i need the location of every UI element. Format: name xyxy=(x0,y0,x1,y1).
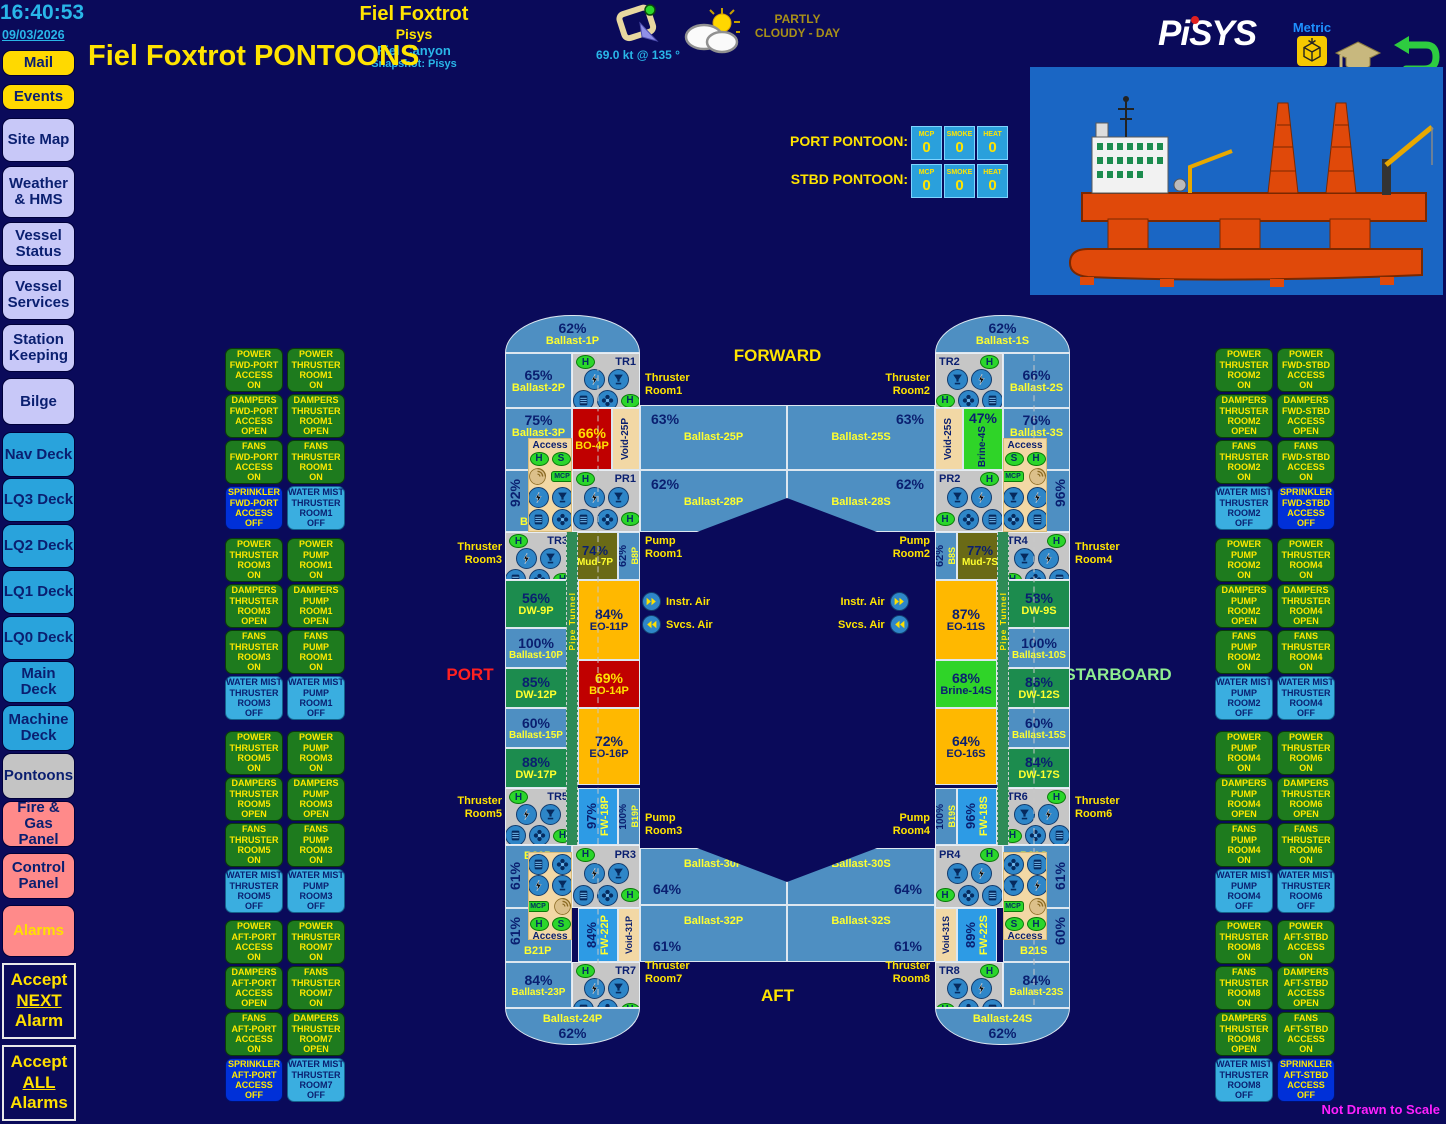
power-icon xyxy=(971,487,992,508)
louver-icon xyxy=(573,885,594,906)
fan-icon xyxy=(552,854,573,875)
tank-bo-4p: 66%BO-4P xyxy=(572,408,612,470)
vent-control-button[interactable]: POWER THRUSTER ROOM8 ON xyxy=(1215,920,1273,964)
power-icon xyxy=(584,487,605,508)
tank-ballast-1s: 62%Ballast-1S xyxy=(935,315,1070,353)
heat-detector-icon: H xyxy=(1027,452,1046,466)
access-area-aft-port: MCP HS Access xyxy=(528,852,572,940)
vent-control-button[interactable]: POWER PUMP ROOM4 ON xyxy=(1215,731,1273,775)
fan-icon xyxy=(958,390,979,408)
room-pr1: HPR1 H xyxy=(572,470,640,532)
vent-control-button[interactable]: WATER MIST THRUSTER ROOM4 OFF xyxy=(1277,676,1335,720)
power-icon xyxy=(584,863,605,884)
heat-detector-icon: H xyxy=(980,355,999,369)
damper-icon xyxy=(1014,548,1035,569)
vent-control-button[interactable]: DAMPERS THRUSTER ROOM7 OPEN xyxy=(287,1012,345,1056)
damper-icon xyxy=(1003,875,1024,896)
room-tr8: HTR8 H xyxy=(935,962,1003,1008)
vent-control-button[interactable]: DAMPERS FWD-PORT ACCESS OPEN xyxy=(225,394,283,438)
svcs-air-label: Svcs. Air xyxy=(838,619,885,631)
heat-detector-icon: H xyxy=(621,512,640,526)
sidebar: 16:40:53 09/03/2026 Mail Events Site Map… xyxy=(0,0,78,1124)
thruster-room1-label: Thruster Room1 xyxy=(645,372,690,397)
sidebar-button[interactable]: Station Keeping xyxy=(2,324,75,372)
tank-ballast-23s: 84%Ballast-23S xyxy=(1003,962,1070,1008)
svcs-air-arrow-icon xyxy=(642,615,661,634)
vent-control-button[interactable]: POWER AFT-STBD ACCESS ON xyxy=(1277,920,1335,964)
vent-control-button[interactable]: DAMPERS AFT-PORT ACCESS OPEN xyxy=(225,966,283,1010)
mid-aft-port-vent-group: POWER THRUSTER ROOM5 ONPOWER PUMP ROOM3 … xyxy=(225,731,345,913)
vent-control-button[interactable]: WATER MIST THRUSTER ROOM1 OFF xyxy=(287,486,345,530)
pisys-logo-dot xyxy=(1191,16,1199,24)
room-tr2: HTR2 H xyxy=(935,353,1003,408)
damper-icon xyxy=(608,369,629,390)
vent-control-button[interactable]: FANS THRUSTER ROOM6 ON xyxy=(1277,823,1335,867)
pipe-tunnel-stbd: Pipe Tunnel xyxy=(997,532,1009,845)
louver-icon xyxy=(505,569,526,580)
sprinkler-rose-icon xyxy=(1027,896,1047,917)
sprinkler-rose-icon xyxy=(528,466,548,487)
thruster-room2-label: Thruster Room2 xyxy=(862,372,930,397)
tank-ballast-32p: Ballast-32P 61% xyxy=(640,905,787,962)
tank-eo-11p: 84%EO-11P xyxy=(578,580,640,660)
manual-call-point-icon: MCP xyxy=(551,471,572,482)
fan-icon xyxy=(597,390,618,408)
sidebar-button[interactable]: Main Deck xyxy=(2,661,75,703)
vent-control-button[interactable]: POWER THRUSTER ROOM5 ON xyxy=(225,731,283,775)
power-icon xyxy=(1038,548,1059,569)
heat-detector-icon: H xyxy=(1047,534,1066,548)
smoke-detector-icon: S xyxy=(1005,452,1024,466)
accept-next-line3: Alarm xyxy=(15,1011,63,1031)
louver-icon xyxy=(1027,509,1048,530)
fan-icon xyxy=(958,885,979,906)
stbd-smoke-counter: SMOKE0 xyxy=(944,164,975,198)
heat-detector-icon: H xyxy=(980,848,999,862)
fan-icon xyxy=(597,885,618,906)
fwd-stbd-vent-group: POWER THRUSTER ROOM2 ONPOWER FWD-STBD AC… xyxy=(1215,348,1335,530)
damper-icon xyxy=(540,548,561,569)
vent-control-button[interactable]: POWER THRUSTER ROOM1 ON xyxy=(287,348,345,392)
units-cube-icon[interactable] xyxy=(1297,36,1327,66)
fan-icon xyxy=(529,825,550,845)
vent-control-button[interactable]: WATER MIST THRUSTER ROOM8 OFF xyxy=(1215,1058,1273,1102)
tank-mud-7p: 74%Mud-7P xyxy=(572,532,618,580)
vent-control-button[interactable]: FANS PUMP ROOM4 ON xyxy=(1215,823,1273,867)
fan-icon xyxy=(958,999,979,1008)
vessel-illustration xyxy=(1030,67,1443,295)
power-icon xyxy=(971,863,992,884)
weather-condition: PARTLY CLOUDY - DAY xyxy=(740,12,855,41)
heat-detector-icon: H xyxy=(936,1003,955,1009)
vent-control-button[interactable]: POWER THRUSTER ROOM6 ON xyxy=(1277,731,1335,775)
tank-ballast-10s: 100%Ballast-10S xyxy=(1008,628,1070,668)
stbd-pontoon-counter-label: STBD PONTOON: xyxy=(786,171,908,187)
fan-icon xyxy=(1025,825,1046,845)
louver-icon xyxy=(528,854,549,875)
vent-control-button[interactable]: DAMPERS PUMP ROOM3 OPEN xyxy=(287,777,345,821)
accept-next-line1: Accept xyxy=(11,970,68,990)
vent-control-button[interactable]: FANS THRUSTER ROOM3 ON xyxy=(225,630,283,674)
vent-control-button[interactable]: POWER THRUSTER ROOM4 ON xyxy=(1277,538,1335,582)
tank-b8p: 62% B8P xyxy=(618,532,640,580)
heat-detector-icon: H xyxy=(621,394,640,408)
louver-icon xyxy=(982,885,1003,906)
vent-control-button[interactable]: FANS THRUSTER ROOM1 ON xyxy=(287,440,345,484)
sidebar-button[interactable]: Pontoons xyxy=(2,753,75,799)
vent-control-button[interactable]: DAMPERS THRUSTER ROOM2 OPEN xyxy=(1215,394,1273,438)
sidebar-button[interactable]: Fire & Gas Panel xyxy=(2,801,75,847)
vent-control-button[interactable]: WATER MIST PUMP ROOM1 OFF xyxy=(287,676,345,720)
tank-ballast-2p: 65%Ballast-2P xyxy=(505,353,572,408)
pisys-logo: PiSYS xyxy=(1158,14,1256,54)
vent-control-button[interactable]: WATER MIST THRUSTER ROOM7 OFF xyxy=(287,1058,345,1102)
vent-control-button[interactable]: FANS THRUSTER ROOM7 ON xyxy=(287,966,345,1010)
vent-control-button[interactable]: DAMPERS THRUSTER ROOM5 OPEN xyxy=(225,777,283,821)
heat-detector-icon: H xyxy=(509,534,528,548)
sidebar-button[interactable]: LQ2 Deck xyxy=(2,524,75,568)
clock-time: 16:40:53 xyxy=(0,2,78,23)
damper-icon xyxy=(540,804,561,825)
tank-void-25p: Void-25P xyxy=(612,408,640,470)
instr-air-label: Instr. Air xyxy=(840,596,884,608)
louver-icon xyxy=(982,999,1003,1008)
vent-control-button[interactable]: POWER PUMP ROOM2 ON xyxy=(1215,538,1273,582)
tank-ballast-32s: Ballast-32S 61% xyxy=(787,905,935,962)
damper-icon xyxy=(947,369,968,390)
smoke-detector-icon: S xyxy=(552,917,571,931)
fan-icon xyxy=(597,509,618,530)
sidebar-button[interactable]: Weather & HMS xyxy=(2,166,75,218)
vent-control-button[interactable]: WATER MIST THRUSTER ROOM2 OFF xyxy=(1215,486,1273,530)
tank-b8s: 62% B8S xyxy=(935,532,957,580)
heat-detector-icon: H xyxy=(576,964,595,978)
vent-control-button[interactable]: FANS THRUSTER ROOM8 ON xyxy=(1215,966,1273,1010)
weather-icon xyxy=(680,6,742,58)
room-tr7: HTR7 H xyxy=(572,962,640,1008)
heat-detector-icon: H xyxy=(530,917,549,931)
units-toggle-label[interactable]: Metric xyxy=(1284,20,1340,35)
sidebar-button[interactable]: Site Map xyxy=(2,118,75,162)
louver-icon xyxy=(505,825,526,845)
vent-control-button[interactable]: DAMPERS PUMP ROOM2 OPEN xyxy=(1215,584,1273,628)
stbd-heat-counter: HEAT0 xyxy=(977,164,1008,198)
port-pontoon-counter-label: PORT PONTOON: xyxy=(786,133,908,149)
system-name: Pisys xyxy=(330,27,498,41)
vent-control-button[interactable]: FANS AFT-STBD ACCESS ON xyxy=(1277,1012,1335,1056)
heat-detector-icon: H xyxy=(621,888,640,902)
tank-dw-12p: 85%DW-12P xyxy=(505,668,567,708)
pump-room2-label: Pump Room2 xyxy=(862,535,930,560)
thruster-room5-label: Thruster Room5 xyxy=(432,795,502,820)
tank-b19p: 100% B19P xyxy=(618,788,640,845)
heat-detector-icon: H xyxy=(980,964,999,978)
sidebar-button[interactable]: Alarms xyxy=(2,905,75,957)
heat-detector-icon: H xyxy=(509,790,528,804)
tank-ballast-23p: 84%Ballast-23P xyxy=(505,962,572,1008)
port-air-supplies: Instr. Air Svcs. Air xyxy=(642,592,713,638)
vent-control-button[interactable]: DAMPERS THRUSTER ROOM1 OPEN xyxy=(287,394,345,438)
accept-all-line2: ALL xyxy=(22,1073,55,1093)
sidebar-button[interactable]: Vessel Status xyxy=(2,222,75,266)
damper-icon xyxy=(608,487,629,508)
vent-control-button[interactable]: DAMPERS THRUSTER ROOM8 OPEN xyxy=(1215,1012,1273,1056)
tank-eo-16s: 64%EO-16S xyxy=(935,708,997,785)
sidebar-button[interactable]: LQ0 Deck xyxy=(2,616,75,660)
damper-icon xyxy=(608,863,629,884)
pipe-tunnel-port: Pipe Tunnel xyxy=(566,532,578,845)
accept-all-line1: Accept xyxy=(11,1052,68,1072)
power-icon xyxy=(516,548,537,569)
room-pr3: HPR3 H xyxy=(572,845,640,908)
power-icon xyxy=(584,978,605,999)
tank-void-31p: Void-31P xyxy=(618,908,640,962)
port-label: PORT xyxy=(440,665,500,685)
sidebar-button[interactable]: Mail xyxy=(2,50,75,76)
pump-room1-label: Pump Room1 xyxy=(645,535,682,560)
room-tr4: HTR4 H xyxy=(1003,532,1070,580)
vent-control-button[interactable]: SPRINKLER FWD-PORT ACCESS OFF xyxy=(225,486,283,530)
fan-icon xyxy=(1003,854,1024,875)
vent-control-button[interactable]: WATER MIST THRUSTER ROOM6 OFF xyxy=(1277,869,1335,913)
mid-fwd-stbd-vent-group: POWER PUMP ROOM2 ONPOWER THRUSTER ROOM4 … xyxy=(1215,538,1335,720)
damper-icon xyxy=(947,978,968,999)
tank-brine-4s: 47%Brine-4S xyxy=(963,408,1003,470)
vent-control-button[interactable]: POWER THRUSTER ROOM7 ON xyxy=(287,920,345,964)
pump-room4-label: Pump Room4 xyxy=(862,812,930,837)
instr-air-arrow-icon xyxy=(642,592,661,611)
vent-control-button[interactable]: SPRINKLER AFT-STBD ACCESS OFF xyxy=(1277,1058,1335,1102)
tank-dw-9s: 58%DW-9S xyxy=(1008,580,1070,628)
tank-dw-17p: 88%DW-17P xyxy=(505,748,567,788)
clock-date[interactable]: 09/03/2026 xyxy=(2,28,65,42)
power-icon xyxy=(528,875,549,896)
thruster-room4-label: Thruster Room4 xyxy=(1075,541,1120,566)
vent-control-button[interactable]: FANS THRUSTER ROOM5 ON xyxy=(225,823,283,867)
manual-call-point-icon: MCP xyxy=(1003,471,1024,482)
stbd-air-supplies: Instr. Air Svcs. Air xyxy=(838,592,909,638)
accept-all-line3: Alarms xyxy=(10,1093,68,1113)
power-icon xyxy=(1027,875,1048,896)
vent-control-button[interactable]: POWER THRUSTER ROOM2 ON xyxy=(1215,348,1273,392)
port-mcp-counter: MCP0 xyxy=(911,126,942,160)
sprinkler-rose-icon xyxy=(1027,466,1047,487)
port-heat-counter: HEAT0 xyxy=(977,126,1008,160)
tank-ballast-25s: 63% Ballast-25S xyxy=(787,405,935,470)
tank-fw-18s: 96% FW-18S xyxy=(957,788,997,845)
page-title: Fiel Foxtrot PONTOONS xyxy=(88,40,419,73)
instr-air-label: Instr. Air xyxy=(666,596,710,608)
power-icon xyxy=(1038,804,1059,825)
tank-eo-11s: 87%EO-11S xyxy=(935,580,997,660)
starboard-label: STARBOARD xyxy=(1058,665,1178,685)
vent-control-button[interactable]: WATER MIST THRUSTER ROOM5 OFF xyxy=(225,869,283,913)
fwd-port-vent-group: POWER FWD-PORT ACCESS ONPOWER THRUSTER R… xyxy=(225,348,345,530)
power-icon xyxy=(516,804,537,825)
aft-stbd-vent-group: POWER THRUSTER ROOM8 ONPOWER AFT-STBD AC… xyxy=(1215,920,1335,1102)
vent-control-button[interactable]: DAMPERS THRUSTER ROOM6 OPEN xyxy=(1277,777,1335,821)
vent-control-button[interactable]: FANS PUMP ROOM1 ON xyxy=(287,630,345,674)
louver-icon xyxy=(528,509,549,530)
pump-room3-label: Pump Room3 xyxy=(645,812,682,837)
vent-control-button[interactable]: WATER MIST THRUSTER ROOM3 OFF xyxy=(225,676,283,720)
smoke-detector-icon: S xyxy=(1005,917,1024,931)
access-area-fwd-stbd: Access SH MCP xyxy=(1003,438,1047,532)
tank-ballast-2s: 66%Ballast-2S xyxy=(1003,353,1070,408)
vent-control-button[interactable]: POWER PUMP ROOM1 ON xyxy=(287,538,345,582)
sidebar-button[interactable]: Nav Deck xyxy=(2,432,75,477)
vent-control-button[interactable]: SPRINKLER FWD-STBD ACCESS OFF xyxy=(1277,486,1335,530)
tank-ballast-10p: 100%Ballast-10P xyxy=(505,628,567,668)
power-icon xyxy=(971,369,992,390)
mid-fwd-port-vent-group: POWER THRUSTER ROOM3 ONPOWER PUMP ROOM1 … xyxy=(225,538,345,720)
mid-aft-stbd-vent-group: POWER PUMP ROOM4 ONPOWER THRUSTER ROOM6 … xyxy=(1215,731,1335,913)
vent-control-button[interactable]: POWER THRUSTER ROOM3 ON xyxy=(225,538,283,582)
sidebar-button[interactable]: Machine Deck xyxy=(2,705,75,751)
tank-brine-14s: 68%Brine-14S xyxy=(935,660,997,708)
accept-next-line2: NEXT xyxy=(16,991,61,1011)
vent-control-button[interactable]: FANS PUMP ROOM2 ON xyxy=(1215,630,1273,674)
access-area-aft-stbd: MCP SH Access xyxy=(1003,852,1047,940)
vent-control-button[interactable]: DAMPERS AFT-STBD ACCESS OPEN xyxy=(1277,966,1335,1010)
fan-icon xyxy=(529,569,550,580)
vent-control-button[interactable]: DAMPERS PUMP ROOM1 OPEN xyxy=(287,584,345,628)
manual-call-point-icon: MCP xyxy=(1003,901,1024,912)
sidebar-button[interactable]: Bilge xyxy=(2,378,75,425)
damper-icon xyxy=(1003,487,1024,508)
louver-icon xyxy=(1049,825,1070,845)
tank-ballast-1p: 62%Ballast-1P xyxy=(505,315,640,353)
vent-control-button[interactable]: FANS AFT-PORT ACCESS ON xyxy=(225,1012,283,1056)
vent-control-button[interactable]: POWER AFT-PORT ACCESS ON xyxy=(225,920,283,964)
svcs-air-label: Svcs. Air xyxy=(666,619,713,631)
power-icon xyxy=(584,369,605,390)
wind-direction-icon xyxy=(612,3,664,49)
thruster-room6-label: Thruster Room6 xyxy=(1075,795,1120,820)
tank-ballast-24p: Ballast-24P62% xyxy=(505,1008,640,1045)
louver-icon xyxy=(573,999,594,1008)
heat-detector-icon: H xyxy=(936,888,955,902)
not-drawn-to-scale: Not Drawn to Scale xyxy=(1305,1102,1440,1117)
instr-air-arrow-icon xyxy=(890,592,909,611)
aft-port-vent-group: POWER AFT-PORT ACCESS ONPOWER THRUSTER R… xyxy=(225,920,345,1102)
vent-control-button[interactable]: FANS THRUSTER ROOM2 ON xyxy=(1215,440,1273,484)
vent-control-button[interactable]: SPRINKLER AFT-PORT ACCESS OFF xyxy=(225,1058,283,1102)
tank-ballast-15s: 60%Ballast-15S xyxy=(1008,708,1070,748)
room-pr4: HPR4 H xyxy=(935,845,1003,908)
heat-detector-icon: H xyxy=(1027,917,1046,931)
vent-control-button[interactable]: FANS PUMP ROOM3 ON xyxy=(287,823,345,867)
access-area-fwd-port: Access HS MCP xyxy=(528,438,572,532)
vent-control-button[interactable]: FANS FWD-PORT ACCESS ON xyxy=(225,440,283,484)
vent-control-button[interactable]: POWER FWD-STBD ACCESS ON xyxy=(1277,348,1335,392)
sidebar-button[interactable]: LQ1 Deck xyxy=(2,570,75,614)
vent-control-button[interactable]: FANS THRUSTER ROOM4 ON xyxy=(1277,630,1335,674)
port-smoke-counter: SMOKE0 xyxy=(944,126,975,160)
wind-readout: 69.0 kt @ 135 ° xyxy=(582,48,694,62)
damper-icon xyxy=(947,863,968,884)
tank-ballast-24s: Ballast-24S62% xyxy=(935,1008,1070,1045)
louver-icon xyxy=(1049,569,1070,580)
fan-icon xyxy=(552,509,573,530)
vent-control-button[interactable]: POWER FWD-PORT ACCESS ON xyxy=(225,348,283,392)
sidebar-button[interactable]: Events xyxy=(2,84,75,110)
room-tr1: HTR1 H xyxy=(572,353,640,408)
vent-control-button[interactable]: POWER PUMP ROOM3 ON xyxy=(287,731,345,775)
tank-eo-16p: 72%EO-16P xyxy=(578,708,640,785)
sidebar-button[interactable]: Control Panel xyxy=(2,853,75,899)
heat-detector-icon: H xyxy=(621,1003,640,1009)
vent-control-button[interactable]: WATER MIST PUMP ROOM4 OFF xyxy=(1215,869,1273,913)
accept-all-alarms-button[interactable]: Accept ALL Alarms xyxy=(2,1045,76,1121)
accept-next-alarm-button[interactable]: Accept NEXT Alarm xyxy=(2,963,76,1039)
sidebar-button[interactable]: Vessel Services xyxy=(2,270,75,320)
vent-control-button[interactable]: DAMPERS THRUSTER ROOM4 OPEN xyxy=(1277,584,1335,628)
heat-detector-icon: H xyxy=(576,848,595,862)
room-tr6: HTR6 H xyxy=(1003,788,1070,845)
vent-control-button[interactable]: WATER MIST PUMP ROOM3 OFF xyxy=(287,869,345,913)
thruster-room7-label: Thruster Room7 xyxy=(645,960,690,985)
vessel-name: Fiel Foxtrot xyxy=(330,4,498,24)
room-pr2: HPR2 H xyxy=(935,470,1003,532)
louver-icon xyxy=(982,509,1003,530)
power-icon xyxy=(528,487,549,508)
tank-ballast-15p: 60%Ballast-15P xyxy=(505,708,567,748)
stbd-mcp-counter: MCP0 xyxy=(911,164,942,198)
tank-bo-14p: 69%BO-14P xyxy=(578,660,640,708)
tank-dw-9p: 56%DW-9P xyxy=(505,580,567,628)
thruster-room3-label: Thruster Room3 xyxy=(432,541,502,566)
louver-icon xyxy=(573,390,594,408)
room-tr3: HTR3 H xyxy=(505,532,572,580)
heat-detector-icon: H xyxy=(936,394,955,408)
heat-detector-icon: H xyxy=(530,452,549,466)
heat-detector-icon: H xyxy=(936,512,955,526)
damper-icon xyxy=(552,875,573,896)
vent-control-button[interactable]: DAMPERS PUMP ROOM4 OPEN xyxy=(1215,777,1273,821)
heat-detector-icon: H xyxy=(576,472,595,486)
vent-control-button[interactable]: DAMPERS THRUSTER ROOM3 OPEN xyxy=(225,584,283,628)
damper-icon xyxy=(552,487,573,508)
sidebar-button[interactable]: LQ3 Deck xyxy=(2,478,75,522)
vent-control-button[interactable]: DAMPERS FWD-STBD ACCESS OPEN xyxy=(1277,394,1335,438)
smoke-detector-icon: S xyxy=(552,452,571,466)
heat-detector-icon: H xyxy=(576,355,595,369)
power-icon xyxy=(971,978,992,999)
fan-icon xyxy=(958,509,979,530)
damper-icon xyxy=(1014,804,1035,825)
damper-icon xyxy=(608,978,629,999)
fan-icon xyxy=(1025,569,1046,580)
louver-icon xyxy=(573,509,594,530)
tank-void-25s: Void-25S xyxy=(935,408,963,470)
tank-ballast-25p: 63% Ballast-25P xyxy=(640,405,787,470)
heat-detector-icon: H xyxy=(980,472,999,486)
forward-label: FORWARD xyxy=(700,346,855,366)
heat-detector-icon: H xyxy=(1047,790,1066,804)
fan-icon xyxy=(1003,509,1024,530)
louver-icon xyxy=(1027,854,1048,875)
louver-icon xyxy=(982,390,1003,408)
aft-label: AFT xyxy=(700,986,855,1006)
svcs-air-arrow-icon xyxy=(890,615,909,634)
tank-void-31s: Void-31S xyxy=(935,908,957,962)
manual-call-point-icon: MCP xyxy=(528,901,549,912)
tank-dw-12s: 86%DW-12S xyxy=(1008,668,1070,708)
vent-control-button[interactable]: WATER MIST PUMP ROOM2 OFF xyxy=(1215,676,1273,720)
vent-control-button[interactable]: FANS FWD-STBD ACCESS ON xyxy=(1277,440,1335,484)
tank-b19s: 100% B19S xyxy=(935,788,957,845)
